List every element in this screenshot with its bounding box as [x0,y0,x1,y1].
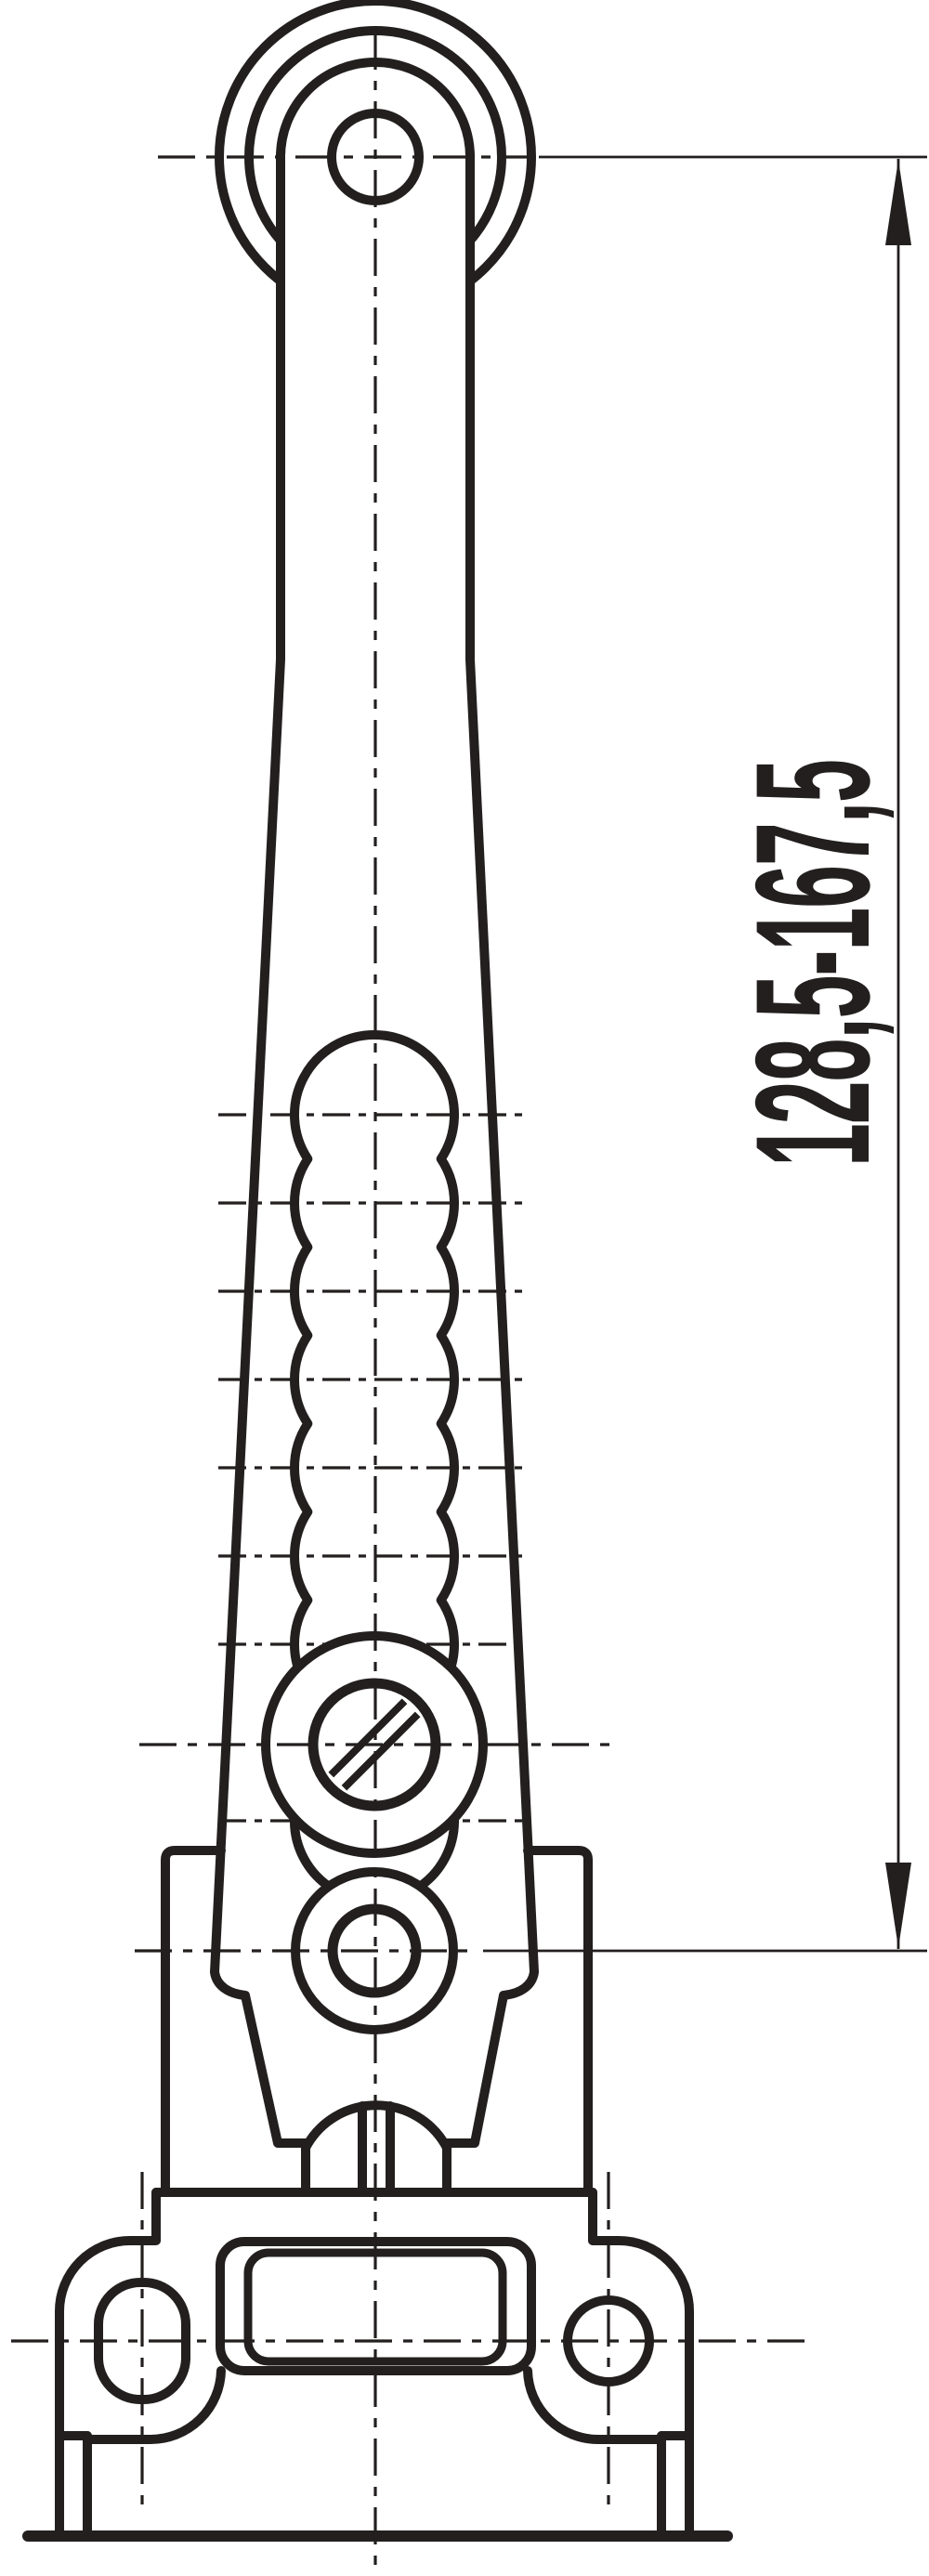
dimension-arrow-bottom [885,1863,911,1948]
technical-drawing: 128,5-167,5 [0,0,929,2576]
dimension-arrow-top [885,160,911,245]
switch-body [28,2192,727,2536]
dimension: 128,5-167,5 [483,157,927,1951]
head-left-bracket [165,1850,221,2192]
drawing-canvas: 128,5-167,5 [0,0,929,2576]
head-right-bracket [528,1850,588,2192]
dimension-label: 128,5-167,5 [723,760,904,1167]
